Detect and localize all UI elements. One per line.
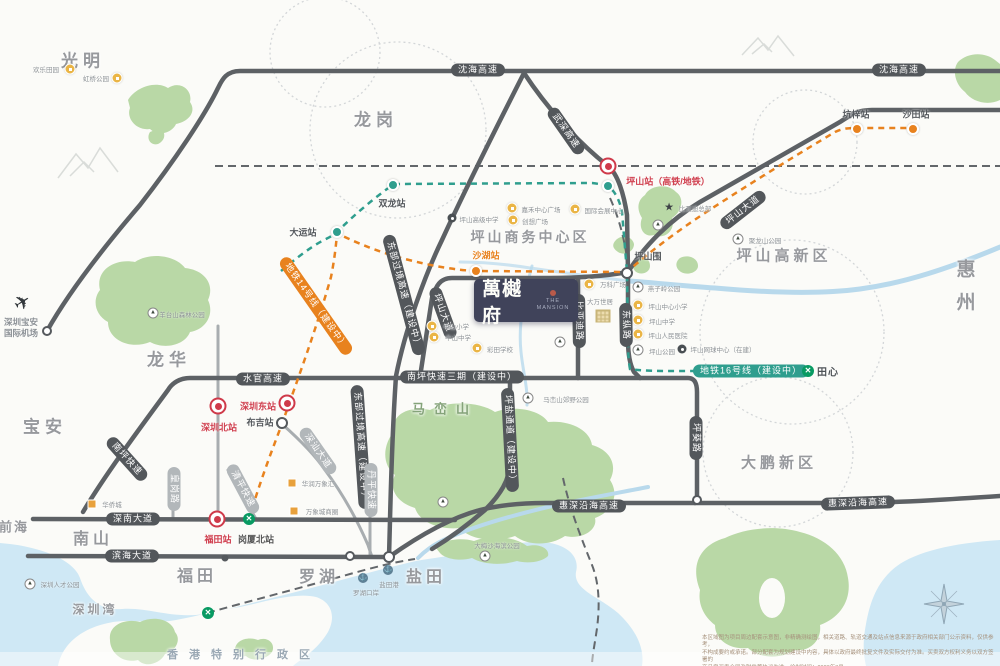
station-metro-marker bbox=[243, 513, 255, 525]
station-label: 深圳北站 bbox=[201, 421, 237, 434]
station-rail-marker bbox=[210, 398, 227, 415]
station-metro-marker bbox=[802, 365, 814, 377]
poi-label: 中山中学 bbox=[445, 332, 471, 342]
road-label-orange: 地铁14号线（建设中） bbox=[277, 255, 354, 357]
station-label: 布吉站 bbox=[246, 416, 273, 429]
road-label-dark: 深南大道 bbox=[106, 513, 160, 526]
poi-blk-icon bbox=[448, 214, 457, 223]
poi-mtn-icon bbox=[523, 393, 534, 404]
airport-label-line1: 深圳宝安 bbox=[4, 317, 38, 328]
road-label-dark: 东纵路 bbox=[619, 303, 633, 347]
poi-label: 燕子岭公园 bbox=[648, 283, 681, 293]
poi-mtn-icon bbox=[555, 337, 566, 348]
region-label: 福田 bbox=[177, 562, 217, 586]
poi-label: 坪山高级中学 bbox=[460, 214, 499, 224]
poi-label: 创想广场 bbox=[522, 216, 548, 226]
road-label-teal: 地铁16号线（建设中） bbox=[693, 365, 809, 378]
poi-sch-icon bbox=[429, 332, 440, 343]
poi-sq-icon bbox=[290, 507, 299, 516]
station-rail-marker bbox=[600, 158, 617, 175]
poi-sq-icon bbox=[288, 479, 297, 488]
poi-port-icon bbox=[383, 565, 393, 575]
poi-label: 坪山中学 bbox=[649, 316, 675, 326]
region-label: 深圳湾 bbox=[72, 601, 117, 618]
station-label: 深圳东站 bbox=[240, 400, 276, 413]
station-rail-marker bbox=[209, 511, 226, 528]
region-label: 坪山商务中心区 bbox=[471, 227, 590, 247]
station-tdot-marker bbox=[602, 180, 614, 192]
poi-sch-icon bbox=[584, 279, 595, 290]
station-label: 大运站 bbox=[289, 226, 316, 239]
project-box: 萬樾府 THE MANSION bbox=[474, 279, 578, 322]
poi-sch-icon bbox=[633, 300, 644, 311]
road-label-dark: 武深高速 bbox=[545, 105, 587, 157]
road-label-dark: 东部过境高速（建设中） bbox=[382, 233, 427, 356]
airport-label: 深圳宝安 国际机场 bbox=[4, 317, 38, 339]
region-label: 宝安 bbox=[23, 413, 67, 438]
poi-label: 万科广场 bbox=[600, 279, 626, 289]
road-label-dark: 坪盐通道（建设中） bbox=[501, 388, 519, 493]
compass-icon bbox=[916, 576, 972, 632]
region-label: 大鹏新区 bbox=[741, 452, 817, 473]
station-label: 坪山围 bbox=[634, 250, 661, 263]
station-label: 双龙站 bbox=[378, 197, 405, 210]
poi-sch-icon bbox=[427, 321, 438, 332]
station-label: 坑梓站 bbox=[842, 108, 869, 121]
road-label-dark: 坪葵路 bbox=[690, 416, 703, 460]
station-odot-marker bbox=[851, 123, 863, 135]
disclaimer-line1: 本区域图为项目周边配套示意图，非精确测绘图，相关道路、轨道交通及站点信息来源于政… bbox=[702, 635, 994, 650]
road-label-gray: 皇岗路 bbox=[168, 467, 181, 511]
station-label: 沙田站 bbox=[902, 108, 929, 121]
road-label-gray: 丹平快速 bbox=[365, 463, 378, 517]
region-label: 坪山高新区 bbox=[736, 245, 831, 266]
road-label-dark: 水官高速 bbox=[236, 373, 290, 386]
poi-label: 深圳人才公园 bbox=[41, 579, 80, 589]
poi-mtn-icon bbox=[633, 282, 644, 293]
station-odot-marker bbox=[907, 123, 919, 135]
region-label: 龙华 bbox=[147, 346, 191, 371]
poi-label: 马峦山郊野公园 bbox=[543, 394, 589, 404]
poi-sch-icon bbox=[472, 343, 483, 354]
project-subtitle: THE MANSION bbox=[536, 298, 570, 311]
poi-label: 万象城商圈 bbox=[306, 506, 339, 516]
station-ring-marker bbox=[276, 417, 288, 429]
poi-label: 彩田学校 bbox=[487, 344, 513, 354]
project-logo-mark-icon bbox=[550, 290, 556, 296]
poi-label: 大万世居 bbox=[587, 296, 613, 306]
poi-label: 中山小学 bbox=[443, 321, 469, 331]
poi-mtn-icon bbox=[633, 345, 644, 356]
poi-sch-icon bbox=[633, 329, 644, 340]
region-label: 田心 bbox=[817, 364, 839, 379]
poi-mtn-icon bbox=[148, 308, 159, 319]
road-label-dark: 南坪快速三期（建设中） bbox=[400, 371, 524, 384]
station-label: 沙湖站 bbox=[472, 249, 499, 262]
station-rail-marker bbox=[279, 395, 296, 412]
poi-sch-icon bbox=[633, 315, 644, 326]
poi-label: 坪山网球中心（在建） bbox=[691, 344, 756, 354]
road-label-dark: 滨海大道 bbox=[105, 550, 159, 563]
poi-label: 大梅沙海滨公园 bbox=[474, 540, 520, 550]
station-tdot-marker bbox=[331, 226, 343, 238]
poi-label: 嘉禾中心广场 bbox=[522, 204, 561, 214]
poi-sch-icon bbox=[507, 203, 518, 214]
poi-sch-icon bbox=[508, 215, 519, 226]
poi-label: 国际会展中心 bbox=[585, 205, 624, 215]
poi-label: 羊台山森林公园 bbox=[159, 309, 205, 319]
poi-label: 华侨城 bbox=[102, 499, 122, 509]
poi-mtn-icon bbox=[733, 234, 744, 245]
road-label-dark: 坪山大道 bbox=[718, 188, 769, 231]
poi-label: 欢乐田园 bbox=[33, 64, 59, 74]
poi-port-icon bbox=[358, 573, 368, 583]
poi-label: 坪山公园 bbox=[649, 346, 675, 356]
poi-sq-icon bbox=[88, 500, 97, 509]
poi-sch-icon bbox=[570, 204, 581, 215]
poi-mtn-icon bbox=[25, 579, 36, 590]
project-logo: THE MANSION bbox=[536, 290, 570, 311]
station-metro-marker bbox=[202, 607, 214, 619]
poi-mtn-icon bbox=[653, 220, 664, 231]
road-label-gray: 深汕大道 bbox=[297, 425, 339, 477]
disclaimer-line2: 不构成要约或承诺。部分配套为规划建设中内容，具体以政府最终批复文件及实际交付为准… bbox=[702, 650, 994, 665]
region-label: 南山 bbox=[73, 525, 113, 549]
poi-label: 聚龙山公园 bbox=[749, 235, 782, 245]
poi-her-icon bbox=[596, 310, 611, 323]
station-label: 坪山站（高铁/地铁） bbox=[626, 175, 710, 188]
poi-label: 盐田港 bbox=[379, 579, 399, 589]
airport-label-line2: 国际机场 bbox=[4, 328, 38, 339]
poi-label: 坪山人民医院 bbox=[649, 330, 688, 340]
region-label: 盐田 bbox=[406, 563, 446, 587]
region-label: 马峦山 bbox=[412, 399, 478, 418]
poi-label: 罗湖口岸 bbox=[353, 587, 379, 597]
region-label: 龙岗 bbox=[354, 106, 398, 131]
poi-mtn-icon bbox=[438, 497, 449, 508]
station-label: 福田站 bbox=[204, 533, 231, 546]
region-label: 罗湖 bbox=[299, 563, 339, 587]
labels-layer: 光明龙岗龙华宝安南山福田罗湖盐田前海深圳湾惠州大鹏新区马峦山坪山商务中心区坪山高… bbox=[0, 0, 1000, 666]
disclaimer-text: 本区域图为项目周边配套示意图，非精确测绘图，相关道路、轨道交通及站点信息来源于政… bbox=[702, 635, 994, 666]
project-name: 萬樾府 bbox=[482, 274, 529, 328]
station-tdot-marker bbox=[387, 179, 399, 191]
poi-label: 虹桥公园 bbox=[83, 73, 109, 83]
road-label-dark: 惠深沿海高速 bbox=[552, 500, 626, 513]
poi-mtn-icon bbox=[480, 551, 491, 562]
road-label-dark: 沈海高速 bbox=[451, 64, 505, 77]
station-ring-marker bbox=[621, 267, 633, 279]
poi-blk-icon bbox=[678, 345, 687, 354]
poi-sch-icon bbox=[112, 73, 123, 84]
road-label-dark: 南坪快速 bbox=[104, 435, 150, 484]
region-label: 前海 bbox=[0, 517, 29, 536]
poi-label: 坪山中心小学 bbox=[649, 301, 688, 311]
poi-star-icon bbox=[664, 203, 674, 214]
region-label: 香港特别行政区 bbox=[167, 646, 321, 662]
poi-label: 比亚迪总部 bbox=[679, 203, 712, 213]
road-label-gray: 清平快速 bbox=[225, 462, 262, 516]
poi-label: 华润万象汇 bbox=[302, 478, 335, 488]
poi-sch-icon bbox=[65, 64, 76, 75]
location-map: 光明龙岗龙华宝安南山福田罗湖盐田前海深圳湾惠州大鹏新区马峦山坪山商务中心区坪山高… bbox=[0, 0, 1000, 666]
station-label: 岗厦北站 bbox=[238, 533, 274, 546]
station-odot-marker bbox=[470, 265, 482, 277]
region-label: 惠州 bbox=[951, 259, 978, 325]
road-label-dark: 沈海高速 bbox=[872, 64, 926, 77]
road-label-dark: 惠深沿海高速 bbox=[821, 495, 895, 511]
